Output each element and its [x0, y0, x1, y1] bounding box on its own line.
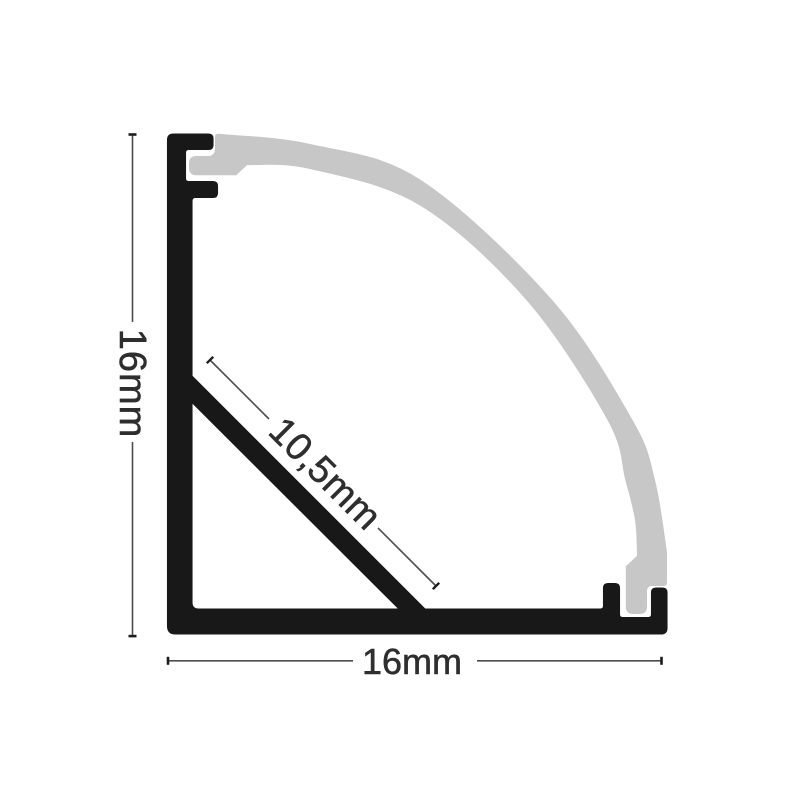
svg-text:16mm: 16mm — [362, 641, 462, 682]
svg-text:16mm: 16mm — [111, 329, 153, 439]
